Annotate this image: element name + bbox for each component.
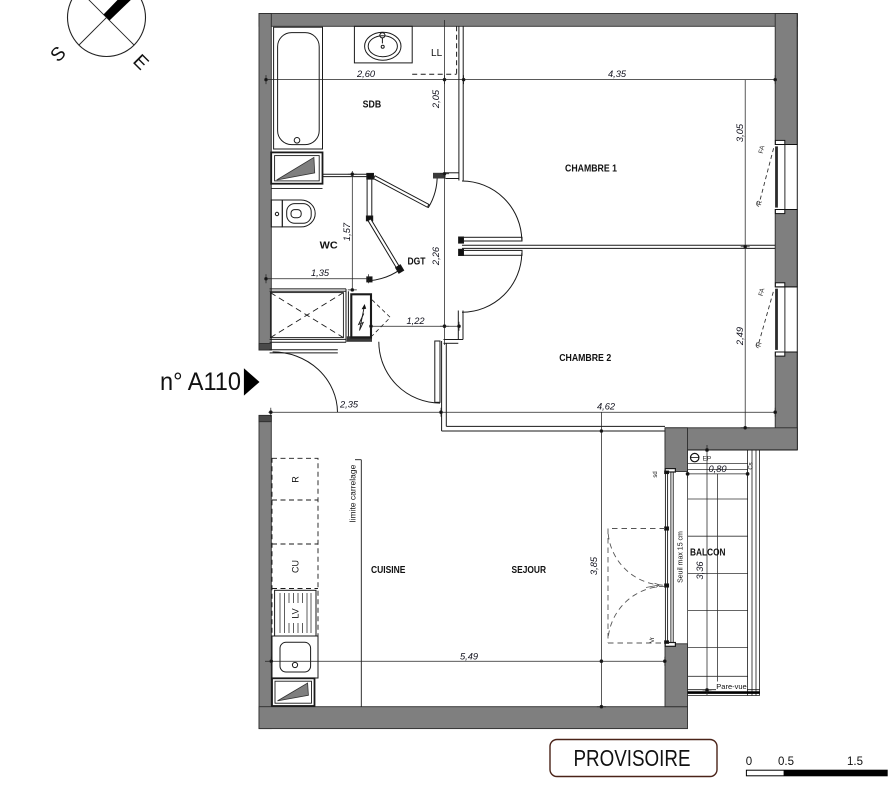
svg-text:5,49: 5,49	[460, 652, 478, 662]
svg-text:4,62: 4,62	[597, 402, 616, 412]
svg-text:limite carrelage: limite carrelage	[348, 464, 358, 522]
svg-text:3,36: 3,36	[695, 561, 705, 580]
svg-text:LV: LV	[290, 608, 300, 618]
svg-text:2,26: 2,26	[431, 246, 441, 266]
svg-text:2,60: 2,60	[356, 69, 376, 79]
svg-text:sd: sd	[653, 471, 659, 477]
svg-text:LL: LL	[431, 48, 443, 59]
svg-text:Cs: Cs	[749, 462, 755, 469]
svg-text:CUISINE: CUISINE	[371, 564, 406, 576]
svg-text:2,35: 2,35	[339, 400, 359, 410]
svg-text:2,49: 2,49	[735, 327, 745, 346]
svg-text:4,35: 4,35	[608, 69, 627, 79]
svg-text:1,22: 1,22	[406, 316, 425, 326]
svg-text:SDB: SDB	[363, 99, 382, 111]
svg-text:3,85: 3,85	[589, 556, 599, 575]
svg-text:0,80: 0,80	[708, 464, 727, 474]
svg-text:BALCON: BALCON	[690, 547, 726, 559]
svg-text:CHAMBRE 2: CHAMBRE 2	[559, 352, 611, 364]
svg-text:3,05: 3,05	[735, 123, 745, 142]
svg-text:0: 0	[746, 756, 752, 768]
svg-text:1,35: 1,35	[311, 268, 330, 278]
svg-text:DGT: DGT	[408, 256, 426, 268]
svg-text:R: R	[290, 476, 300, 483]
svg-text:SEJOUR: SEJOUR	[512, 564, 547, 576]
svg-text:Pare-vue: Pare-vue	[716, 682, 746, 691]
svg-text:0.5: 0.5	[778, 756, 794, 768]
svg-text:n° A110: n° A110	[160, 368, 241, 396]
svg-text:Vr: Vr	[650, 637, 656, 643]
svg-text:2,05: 2,05	[431, 89, 441, 109]
svg-text:CHAMBRE 1: CHAMBRE 1	[565, 163, 617, 175]
svg-text:WC: WC	[320, 240, 338, 252]
svg-text:Seuil max 15 cm: Seuil max 15 cm	[678, 531, 685, 583]
svg-text:CU: CU	[290, 560, 300, 573]
svg-text:PROVISOIRE: PROVISOIRE	[574, 745, 691, 771]
svg-text:1,57: 1,57	[342, 222, 352, 241]
svg-text:1.5: 1.5	[847, 756, 863, 768]
